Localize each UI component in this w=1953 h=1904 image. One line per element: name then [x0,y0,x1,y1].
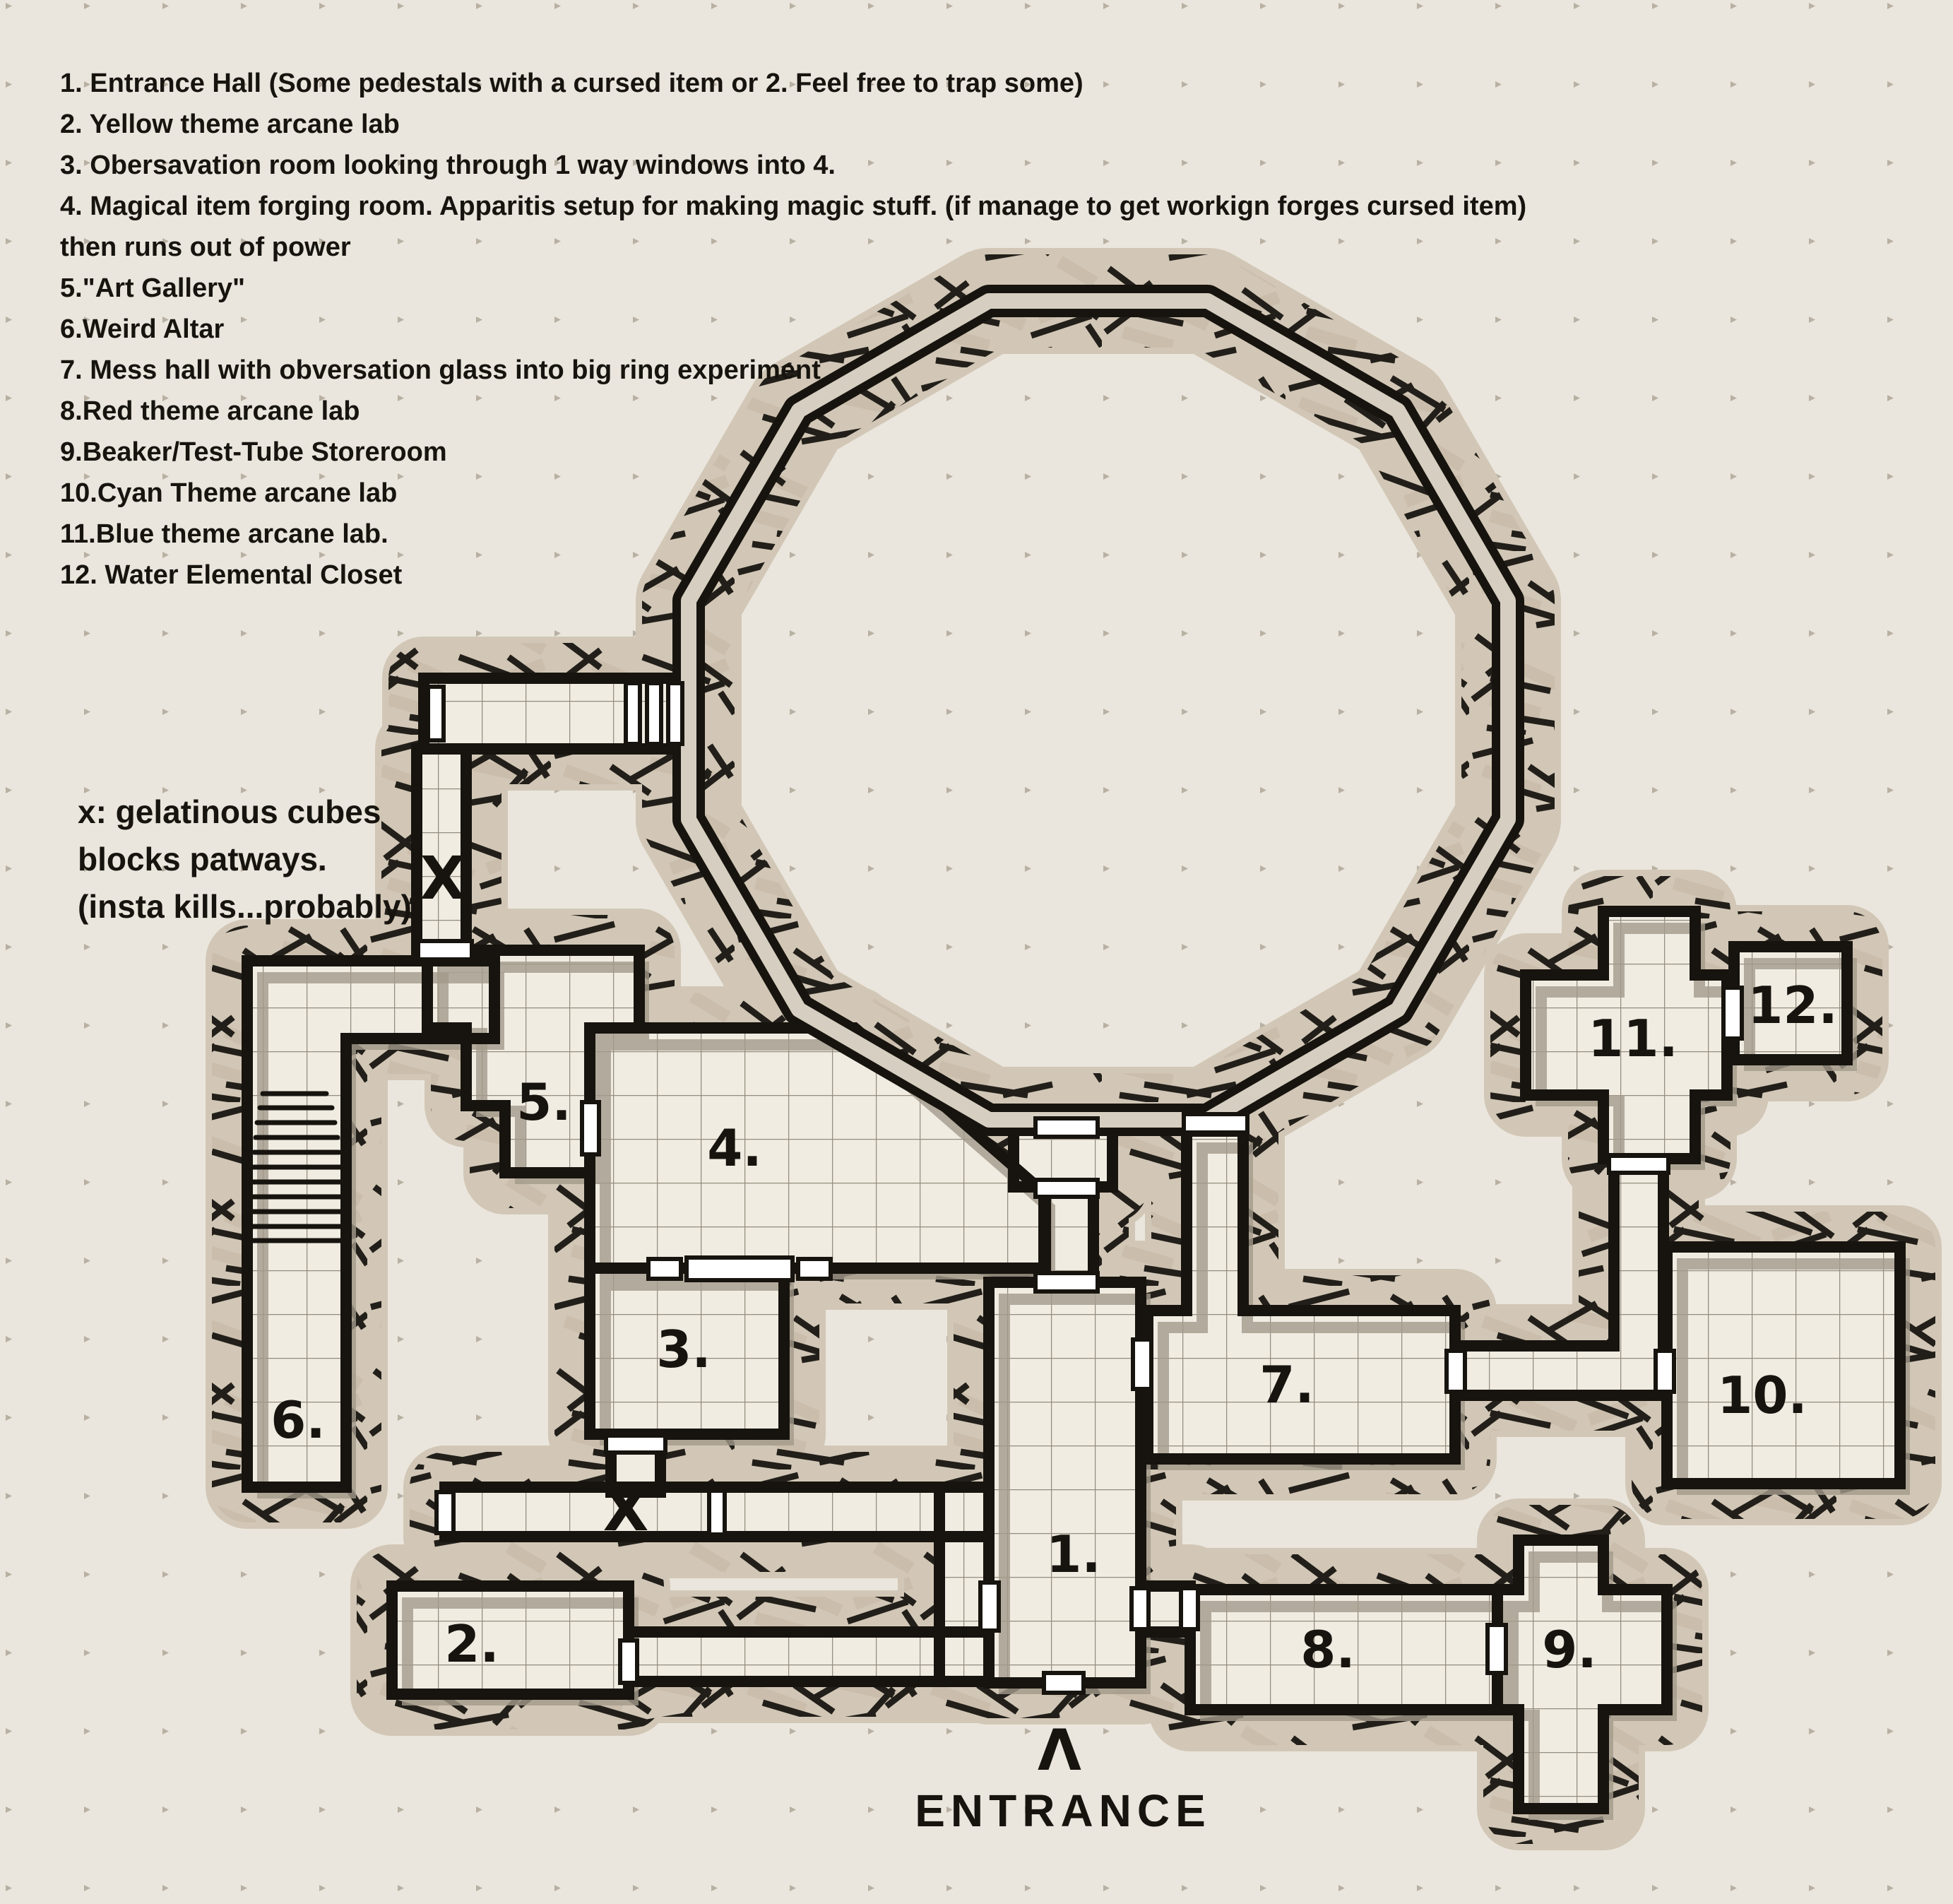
door [437,1492,453,1533]
window [648,1259,681,1279]
door [428,687,444,740]
room-label-10: 10. [1717,1366,1807,1425]
door [1488,1625,1506,1673]
room-label-9: 9. [1542,1620,1596,1679]
legend-line-11: 10.Cyan Theme arcane lab [60,478,397,508]
legend-line-6: 5."Art Gallery" [60,273,245,303]
legend-line-13: 12. Water Elemental Closet [60,560,403,590]
legend-line-7: 6.Weird Altar [60,314,224,344]
window [687,1258,793,1280]
room-label-2: 2. [444,1614,499,1674]
legend-line-8: 7. Mess hall with obversation glass into… [60,355,821,385]
note-line-3: (insta kills...probably) [78,888,412,925]
door [1133,1340,1151,1389]
gelatinous-cube-mark: X [603,1475,649,1544]
gelatinous-cube-mark: X [420,844,466,913]
door [1132,1588,1148,1629]
door [1035,1180,1098,1197]
legend-line-9: 8.Red theme arcane lab [60,396,360,426]
room-label-8: 8. [1300,1620,1355,1679]
door [1447,1351,1465,1392]
dungeon-map-svg: 1. 2. 3. 4. 5. 6. 7. 8. 9. 10. 11. 12. X… [0,0,1953,1904]
door [1184,1114,1247,1133]
legend-line-12: 11.Blue theme arcane lab. [60,519,388,549]
legend-line-1: 1. Entrance Hall (Some pedestals with a … [60,69,1084,98]
door [1181,1588,1198,1629]
legend-line-3: 3. Obersavation room looking through 1 w… [60,150,836,180]
door [1609,1156,1668,1173]
room-label-3: 3. [656,1320,711,1379]
door [1723,988,1742,1039]
legend-line-5: then runs out of power [60,232,351,262]
door [620,1640,637,1683]
door [980,1583,999,1631]
door [582,1102,599,1154]
legend-line-4: 4. Magical item forging room. Apparitis … [60,191,1526,221]
door [1035,1118,1098,1137]
legend-line-2: 2. Yellow theme arcane lab [60,110,400,139]
window [668,683,682,744]
note-line-2: blocks patways. [78,841,327,877]
room-label-5: 5. [516,1072,571,1132]
room-label-12: 12. [1747,976,1838,1035]
room-label-6: 6. [271,1390,325,1450]
legend-line-10: 9.Beaker/Test-Tube Storeroom [60,437,447,467]
room-label-7: 7. [1259,1355,1314,1414]
door [1656,1351,1674,1392]
entrance-arrow-icon: Λ [1038,1717,1081,1783]
room-label-1: 1. [1046,1525,1100,1584]
door [709,1491,725,1535]
dungeon-map-page: 1. 2. 3. 4. 5. 6. 7. 8. 9. 10. 11. 12. X… [0,0,1953,1904]
room-label-4: 4. [707,1118,761,1178]
door [1044,1673,1084,1693]
door [1035,1273,1098,1291]
door [418,941,472,959]
note-line-1: x: gelatinous cubes [78,793,381,830]
door [606,1436,665,1453]
window [626,683,640,744]
room-label-11: 11. [1588,1009,1678,1068]
window [647,683,661,744]
window [798,1259,831,1279]
entrance-label: ENTRANCE [915,1785,1211,1836]
